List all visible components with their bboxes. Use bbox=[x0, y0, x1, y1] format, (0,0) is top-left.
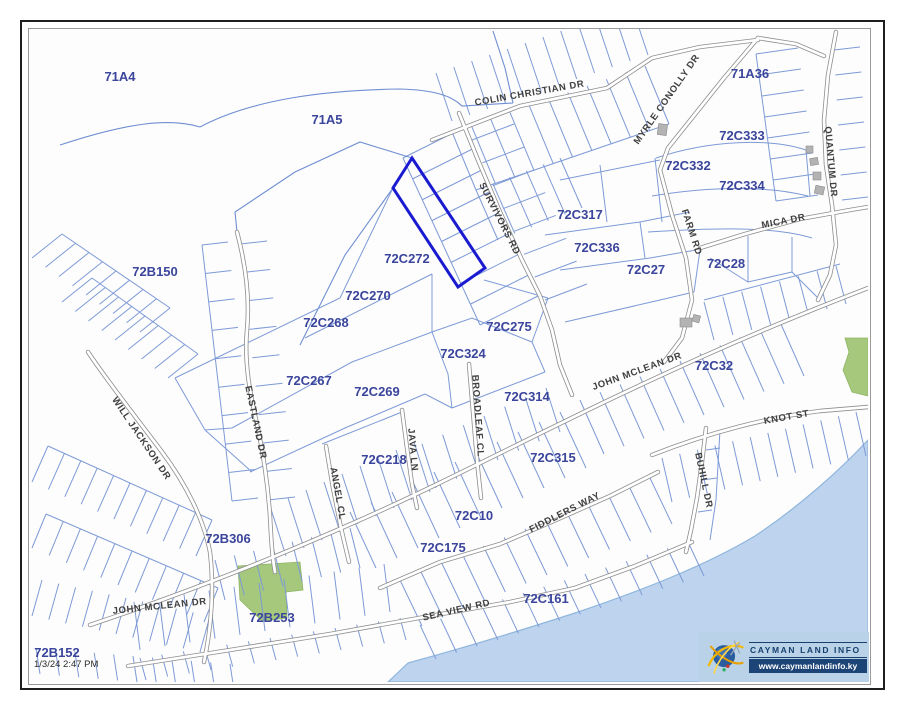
parcel-label-72C175: 72C175 bbox=[420, 540, 466, 555]
parcel-label-71A4: 71A4 bbox=[104, 69, 136, 84]
parcel-label-72C324: 72C324 bbox=[440, 346, 486, 361]
parcel-label-72C317: 72C317 bbox=[557, 207, 603, 222]
timestamp: 1/3/24 2:47 PM bbox=[34, 659, 98, 670]
cayman-land-info-logo[interactable]: CAYMAN LAND INFO www.caymanlandinfo.ky bbox=[699, 632, 869, 682]
logo-title: CAYMAN LAND INFO bbox=[749, 642, 867, 658]
parcel-label-72C269: 72C269 bbox=[354, 384, 400, 399]
globe-icon bbox=[703, 634, 747, 680]
parcel-label-72C332: 72C332 bbox=[665, 158, 711, 173]
parcel-label-72B306: 72B306 bbox=[205, 531, 251, 546]
parcel-label-72B253: 72B253 bbox=[249, 610, 295, 625]
parcel-label-72C333: 72C333 bbox=[719, 128, 765, 143]
parcel-label-72B150: 72B150 bbox=[132, 264, 178, 279]
parcel-label-72C267: 72C267 bbox=[286, 373, 332, 388]
parcel-label-72C27: 72C27 bbox=[627, 262, 665, 277]
parcel-label-71A36: 71A36 bbox=[731, 66, 769, 81]
parcel-label-72C161: 72C161 bbox=[523, 591, 569, 606]
parcel-label-72B152: 72B152 bbox=[34, 645, 80, 660]
parcel-label-72C275: 72C275 bbox=[486, 319, 532, 334]
parcel-label-72C270: 72C270 bbox=[345, 288, 391, 303]
parcel-label-72C268: 72C268 bbox=[303, 315, 349, 330]
parcel-label-72C315: 72C315 bbox=[530, 450, 576, 465]
parcel-label-72C334: 72C334 bbox=[719, 178, 765, 193]
parcel-label-72C32: 72C32 bbox=[695, 358, 733, 373]
logo-url: www.caymanlandinfo.ky bbox=[749, 659, 867, 673]
map-canvas[interactable]: COLIN CHRISTIAN DRMYRLE CONOLLY DRQUANTU… bbox=[0, 0, 905, 710]
parcel-label-72C10: 72C10 bbox=[455, 508, 493, 523]
parcel-label-72C336: 72C336 bbox=[574, 240, 620, 255]
parcel-label-72C272: 72C272 bbox=[384, 251, 430, 266]
parcel-label-72C314: 72C314 bbox=[504, 389, 550, 404]
parcel-label-72C218: 72C218 bbox=[361, 452, 407, 467]
parcel-label-71A5: 71A5 bbox=[311, 112, 342, 127]
parcel-label-72C28: 72C28 bbox=[707, 256, 745, 271]
